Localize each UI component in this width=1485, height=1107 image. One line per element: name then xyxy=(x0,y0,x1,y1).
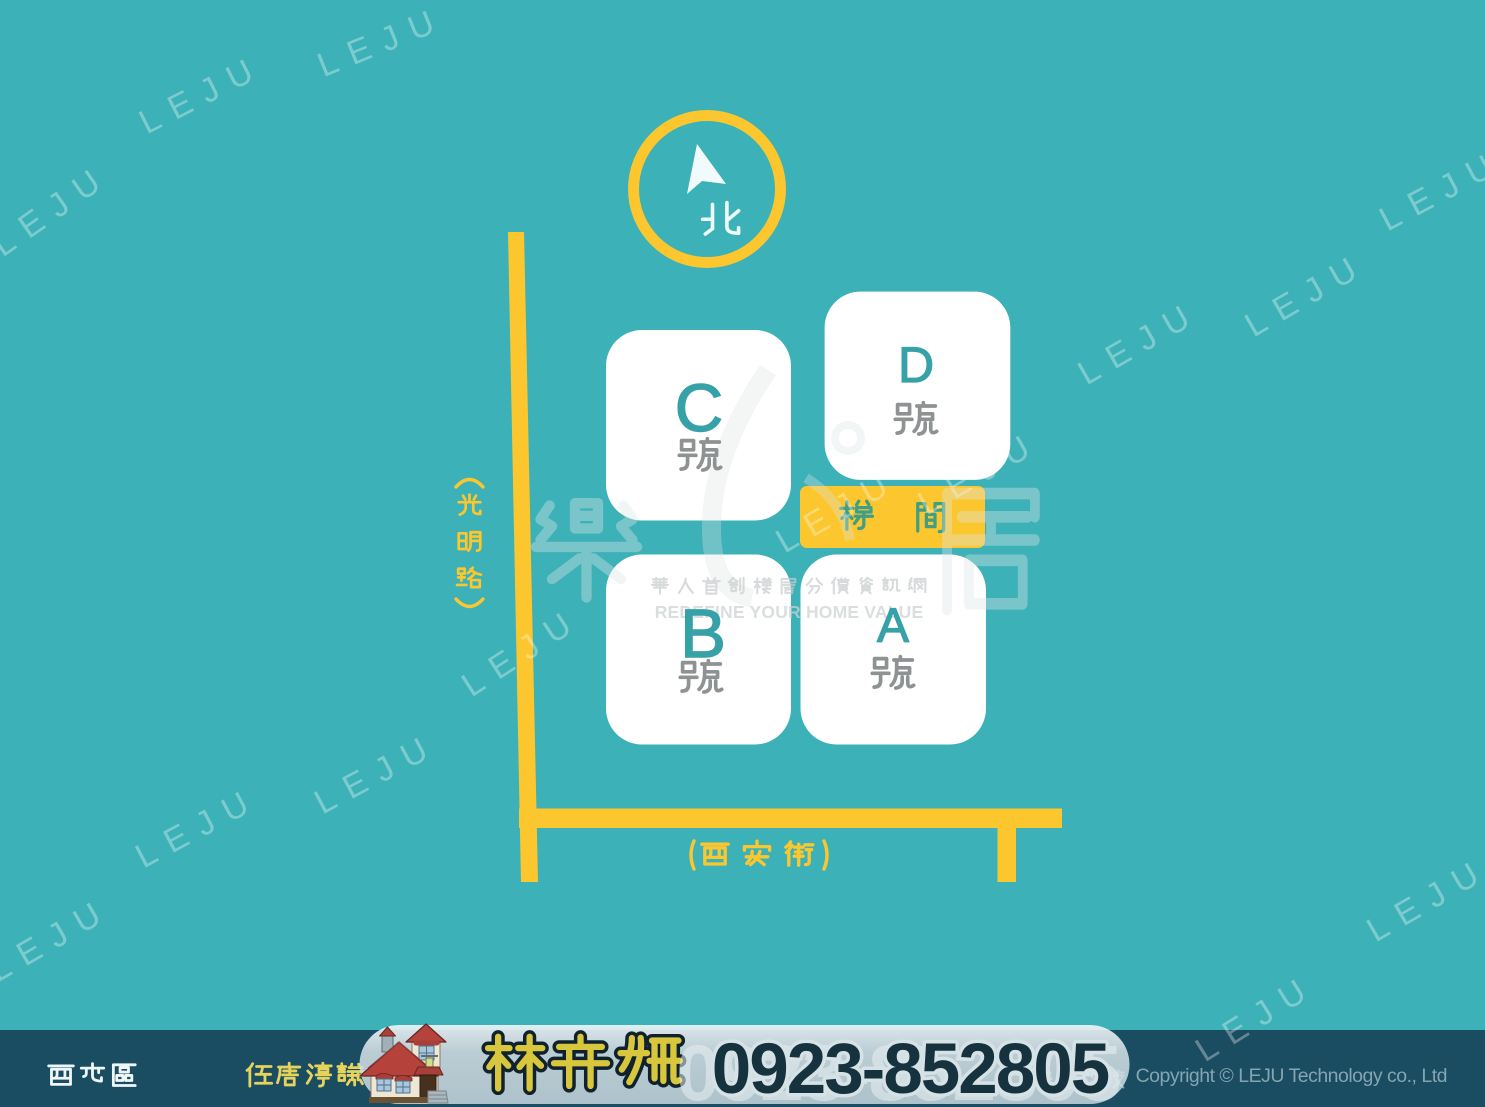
svg-text:Copyright © LEJU Technology co: Copyright © LEJU Technology co., Ltd xyxy=(1136,1065,1447,1087)
svg-text:A: A xyxy=(877,600,909,653)
svg-text:0923-852805: 0923-852805 xyxy=(712,1030,1109,1107)
svg-text:C: C xyxy=(675,371,723,446)
svg-text:D: D xyxy=(898,337,934,393)
svg-text:B: B xyxy=(680,595,726,672)
